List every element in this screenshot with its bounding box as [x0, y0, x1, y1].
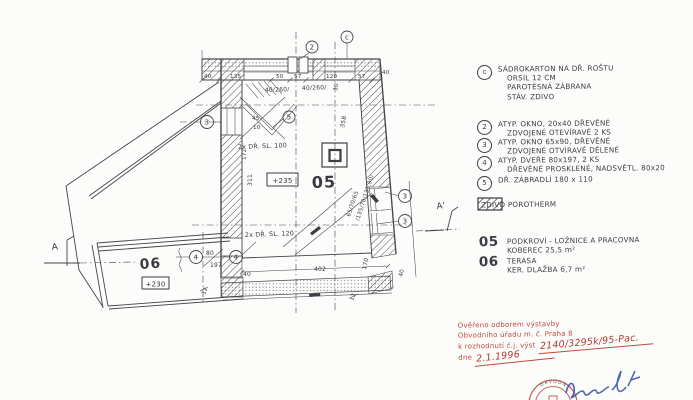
lintel-note-a: 40/260/	[265, 86, 291, 94]
room-number-06: 06	[139, 256, 162, 273]
legend-line: DŘEVĚNÉ PROSKLENÉ, NADSVĚTL. 80x20	[498, 163, 665, 174]
dim-12a: 12	[201, 287, 209, 296]
dim-40-left: 40	[204, 74, 212, 80]
door-dim-denominator: 197	[210, 262, 222, 269]
top-wall	[200, 50, 383, 83]
legend-marker-3: 3	[477, 138, 492, 153]
legend-marker-5: 5	[477, 176, 492, 191]
legend-room-06-number: 06	[479, 256, 499, 275]
dim-50: 50	[276, 74, 284, 80]
legend-wall-swatch-row: ZDIVO POROTHERM	[477, 197, 556, 209]
elevation-05: +235	[272, 177, 292, 185]
dim-10a: 10	[333, 83, 340, 92]
dim-57a: 57	[294, 74, 302, 80]
callout-3-right-2: 3	[403, 218, 408, 226]
legend-item-window-2: 2 ATYP. OKNO, 20x40 DŘEVĚNÉ ZDVOJENÉ OTE…	[477, 119, 611, 137]
dim-57b: 57	[358, 74, 366, 80]
callout-5: 5	[287, 114, 292, 122]
column-note-top: 2x DŘ. SL. 100	[238, 140, 287, 151]
column-note-bottom: 2x DŘ. SL. 120	[245, 228, 294, 239]
legend-room-05: 05 PODKROVÍ - LOŽNICE A PRACOVNA KOBEREC…	[479, 236, 639, 255]
legend-room-06-finish: KER. DLAŽBA 6,7 m²	[507, 265, 585, 275]
elevation-06: +230	[145, 281, 165, 289]
dim-170: 170	[361, 257, 370, 270]
dim-10b: 10	[253, 125, 261, 131]
legend-room-05-finish: KOBEREC 25,5 m²	[507, 244, 640, 255]
callout-2: 2	[310, 44, 315, 52]
dim-40-corner: 40	[398, 268, 406, 277]
legend-marker-4: 4	[477, 156, 492, 171]
lintel-note-b: 40/260/	[302, 84, 328, 92]
legend-item-railing-5: 5 DŘ. ZÁBRADLÍ 180 x 110	[477, 175, 593, 191]
signature	[566, 371, 640, 398]
legend-room-06: 06 TERASA KER. DLAŽBA 6,7 m²	[479, 256, 585, 275]
legend-marker-c: c	[477, 65, 492, 80]
section-label-a-prime: A'	[436, 201, 446, 212]
dim-40-bottom: 40	[243, 271, 251, 278]
callout-3-right-1: 3	[403, 193, 408, 201]
callout-3-left: 3	[205, 119, 210, 127]
roof-outline	[66, 82, 221, 307]
right-wall	[359, 59, 396, 258]
dim-40-right: 40	[382, 70, 390, 76]
room-number-05: 05	[311, 172, 336, 192]
stamp-line-4-prefix: dne	[458, 354, 472, 362]
wall-swatch-label: ZDIVO POROTHERM	[481, 200, 556, 210]
approval-stamp: Ověřeno odborem výstavby Obvodního úřadu…	[458, 318, 654, 365]
legend-item-ceiling: c SÁDROKARTON NA DŘ. ROŠTU ORSIL 12 CM P…	[477, 64, 614, 101]
legend-item-window-3: 3 ATYP. OKNO 65x90, DŘEVĚNÉ ZDVOJENÉ OTV…	[477, 137, 619, 155]
dim-311: 311	[247, 174, 254, 186]
legend-line: DŘ. ZÁBRADLÍ 180 x 110	[498, 175, 593, 185]
callout-4-b: 4	[234, 254, 239, 262]
drawing-sheet: A A' 2 c 3 5 3 3 4 4 135 50 57 120 57 40…	[0, 0, 693, 400]
door-dim-numerator: 80	[206, 250, 214, 257]
legend-line: STÁV. ZDIVO	[498, 91, 614, 101]
interior-features	[142, 80, 379, 297]
callout-4-a: 4	[194, 254, 199, 262]
dim-120: 120	[326, 74, 338, 80]
column-symbol	[322, 143, 347, 167]
dim-402: 402	[314, 266, 326, 273]
dim-135: 135	[230, 74, 242, 80]
dim-45: 45	[252, 116, 260, 122]
section-label-a: A	[51, 242, 59, 253]
legend-room-05-number: 05	[479, 236, 499, 255]
dim-358: 358	[339, 115, 348, 128]
dim-12b: 12	[349, 293, 357, 302]
callout-c: c	[345, 34, 349, 42]
legend-marker-2: 2	[477, 120, 492, 135]
left-wall	[221, 59, 256, 278]
legend-item-door-4: 4 ATYP. DVEŘE 80x197, 2 KS DŘEVĚNÉ PROSK…	[477, 155, 665, 173]
